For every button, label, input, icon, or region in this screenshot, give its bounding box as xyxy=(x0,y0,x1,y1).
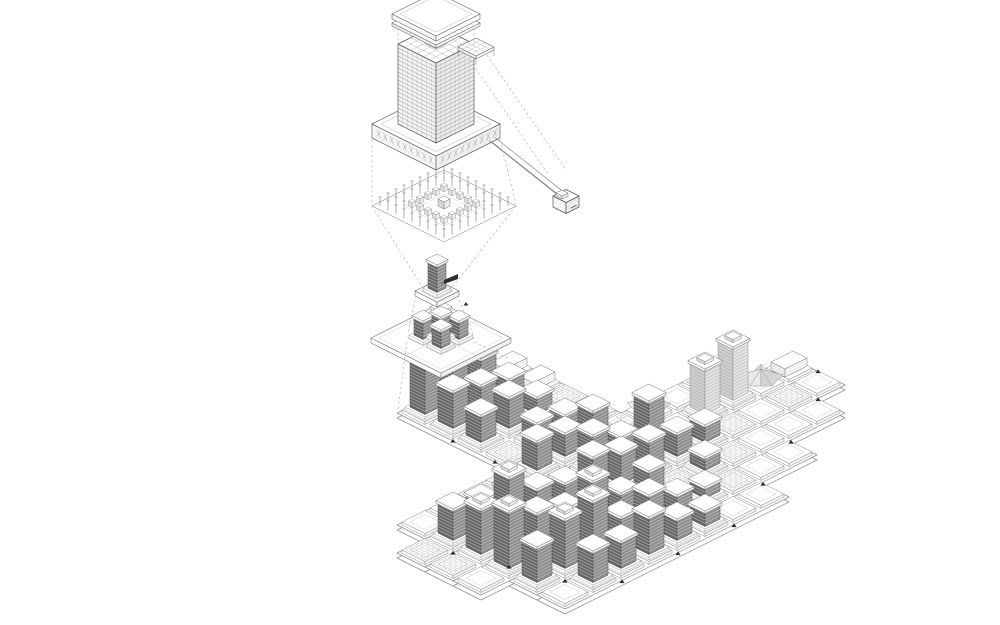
axonometric-scene xyxy=(0,0,1000,625)
masterplan xyxy=(397,330,845,614)
exploded-detail xyxy=(372,0,579,242)
architectural-diagram xyxy=(0,0,1000,625)
tower-unit xyxy=(415,254,468,307)
